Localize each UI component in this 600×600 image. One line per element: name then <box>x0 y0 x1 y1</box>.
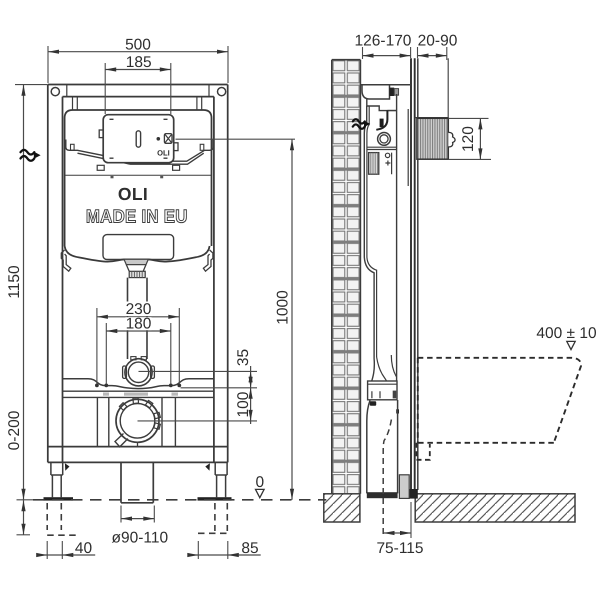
svg-text:126-170: 126-170 <box>355 32 412 49</box>
svg-text:35: 35 <box>235 349 252 366</box>
svg-text:1000: 1000 <box>275 290 292 325</box>
svg-text:75-115: 75-115 <box>376 540 423 557</box>
svg-text:20-90: 20-90 <box>418 32 458 49</box>
svg-text:100: 100 <box>235 391 252 417</box>
svg-text:1150: 1150 <box>6 265 23 299</box>
svg-text:40: 40 <box>75 540 93 557</box>
svg-text:OLI: OLI <box>157 149 170 158</box>
svg-text:0: 0 <box>255 474 264 491</box>
svg-text:500: 500 <box>125 36 151 53</box>
svg-text:ø90-110: ø90-110 <box>112 530 169 547</box>
svg-text:185: 185 <box>126 54 152 71</box>
svg-text:MADE IN EU: MADE IN EU <box>86 205 188 226</box>
svg-text:120: 120 <box>460 126 477 152</box>
svg-text:85: 85 <box>241 540 258 557</box>
svg-text:0-200: 0-200 <box>6 410 23 450</box>
svg-text:OLI: OLI <box>118 184 148 204</box>
svg-text:400 ± 10: 400 ± 10 <box>536 325 597 342</box>
svg-text:180: 180 <box>126 316 152 333</box>
